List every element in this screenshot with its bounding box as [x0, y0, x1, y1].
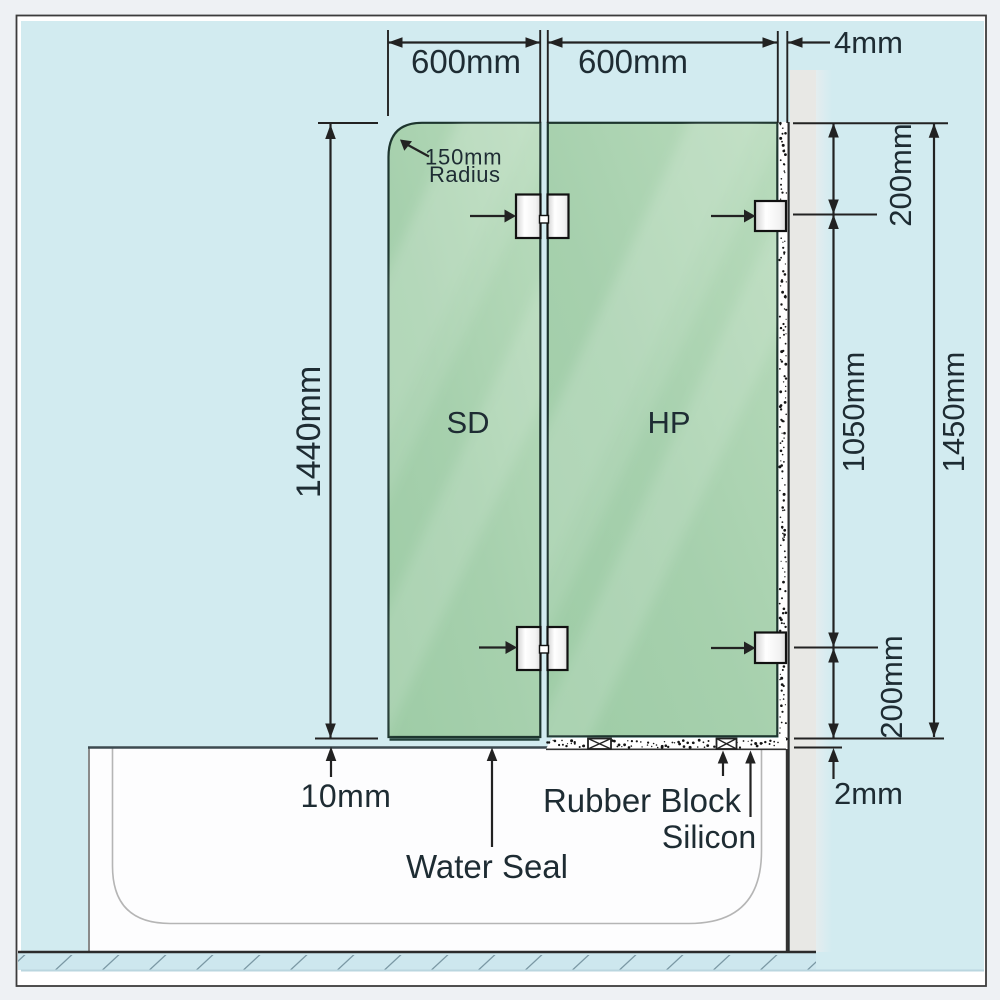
svg-text:Silicon: Silicon	[662, 819, 756, 855]
svg-text:4mm: 4mm	[834, 25, 903, 60]
svg-text:1050mm: 1050mm	[836, 352, 871, 473]
svg-text:Radius: Radius	[429, 162, 500, 187]
svg-text:Rubber Block: Rubber Block	[543, 782, 742, 819]
svg-text:1450mm: 1450mm	[936, 352, 971, 473]
svg-text:10mm: 10mm	[301, 778, 392, 814]
svg-text:HP: HP	[647, 405, 690, 440]
svg-text:600mm: 600mm	[411, 43, 521, 80]
svg-text:200mm: 200mm	[874, 635, 909, 738]
svg-text:200mm: 200mm	[883, 123, 918, 226]
svg-text:2mm: 2mm	[834, 776, 903, 811]
svg-text:600mm: 600mm	[578, 43, 688, 80]
svg-text:SD: SD	[446, 405, 489, 440]
svg-text:Water Seal: Water Seal	[406, 848, 568, 885]
svg-text:1440mm: 1440mm	[290, 366, 328, 498]
